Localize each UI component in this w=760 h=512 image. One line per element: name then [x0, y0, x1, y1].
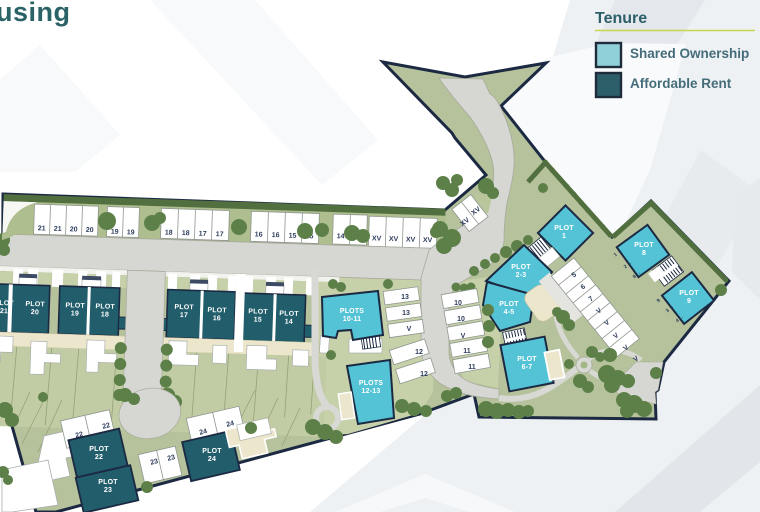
svg-text:using: using — [0, 0, 71, 27]
svg-text:PLOT: PLOT — [554, 225, 574, 232]
svg-text:PLOT: PLOT — [0, 300, 15, 308]
svg-text:XV: XV — [389, 236, 399, 243]
svg-text:PLOTS: PLOTS — [359, 380, 383, 387]
svg-text:16: 16 — [255, 231, 263, 238]
svg-text:PLOT: PLOT — [207, 307, 227, 315]
svg-text:18: 18 — [101, 311, 109, 318]
svg-text:15: 15 — [254, 316, 262, 323]
svg-text:6-7: 6-7 — [522, 364, 533, 371]
svg-text:PLOT: PLOT — [279, 310, 299, 318]
svg-text:V: V — [407, 326, 412, 333]
svg-text:21: 21 — [38, 225, 46, 232]
svg-text:Shared Ownership: Shared Ownership — [630, 46, 749, 61]
svg-text:13: 13 — [401, 294, 409, 301]
svg-text:15: 15 — [289, 233, 297, 240]
svg-text:20: 20 — [70, 226, 78, 233]
svg-text:XV: XV — [423, 237, 433, 244]
svg-text:PLOT: PLOT — [65, 302, 85, 310]
svg-text:14: 14 — [337, 233, 345, 240]
svg-text:12: 12 — [415, 349, 423, 356]
svg-text:17: 17 — [180, 312, 188, 319]
svg-text:10: 10 — [457, 316, 465, 323]
svg-text:1: 1 — [562, 233, 566, 240]
svg-text:PLOT: PLOT — [499, 301, 519, 308]
svg-text:PLOT: PLOT — [174, 304, 194, 312]
svg-text:Affordable Rent: Affordable Rent — [630, 76, 732, 91]
svg-text:19: 19 — [127, 229, 135, 236]
svg-text:4-5: 4-5 — [504, 309, 515, 316]
svg-text:23: 23 — [104, 487, 112, 494]
svg-text:PLOT: PLOT — [95, 303, 115, 311]
svg-text:12: 12 — [420, 371, 428, 378]
svg-text:16: 16 — [213, 315, 221, 322]
svg-text:19: 19 — [71, 310, 79, 317]
svg-text:V: V — [461, 333, 466, 340]
svg-text:PLOT: PLOT — [248, 308, 268, 316]
svg-text:17: 17 — [199, 231, 207, 238]
svg-text:PLOT: PLOT — [98, 479, 118, 486]
svg-text:17: 17 — [216, 231, 224, 238]
svg-text:11: 11 — [463, 348, 471, 355]
svg-text:12-13: 12-13 — [362, 388, 381, 395]
svg-text:8: 8 — [642, 250, 646, 257]
svg-text:PLOT: PLOT — [89, 446, 109, 453]
svg-text:18: 18 — [165, 229, 173, 236]
svg-text:PLOT: PLOT — [511, 264, 531, 271]
svg-text:21: 21 — [54, 226, 62, 233]
svg-text:24: 24 — [208, 456, 216, 463]
svg-text:9: 9 — [687, 298, 691, 305]
svg-text:XV: XV — [372, 235, 382, 242]
svg-text:18: 18 — [182, 230, 190, 237]
svg-text:21: 21 — [0, 308, 8, 315]
svg-text:PLOT: PLOT — [634, 242, 654, 249]
svg-text:10: 10 — [454, 300, 462, 307]
svg-text:22: 22 — [95, 454, 103, 461]
svg-text:XV: XV — [406, 236, 416, 243]
svg-text:PLOT: PLOT — [517, 356, 537, 363]
svg-text:14: 14 — [285, 318, 293, 325]
svg-text:PLOTS: PLOTS — [340, 308, 364, 315]
svg-text:19: 19 — [111, 229, 119, 236]
svg-text:16: 16 — [272, 232, 280, 239]
svg-text:PLOT: PLOT — [202, 448, 222, 455]
svg-text:PLOT: PLOT — [25, 301, 45, 309]
svg-text:10-11: 10-11 — [343, 316, 362, 323]
svg-text:PLOT: PLOT — [679, 290, 699, 297]
svg-text:11: 11 — [468, 364, 476, 371]
svg-text:Tenure: Tenure — [595, 10, 647, 27]
svg-text:20: 20 — [31, 309, 39, 316]
svg-text:2-3: 2-3 — [516, 272, 527, 279]
svg-text:20: 20 — [86, 227, 94, 234]
svg-text:13: 13 — [402, 310, 410, 317]
